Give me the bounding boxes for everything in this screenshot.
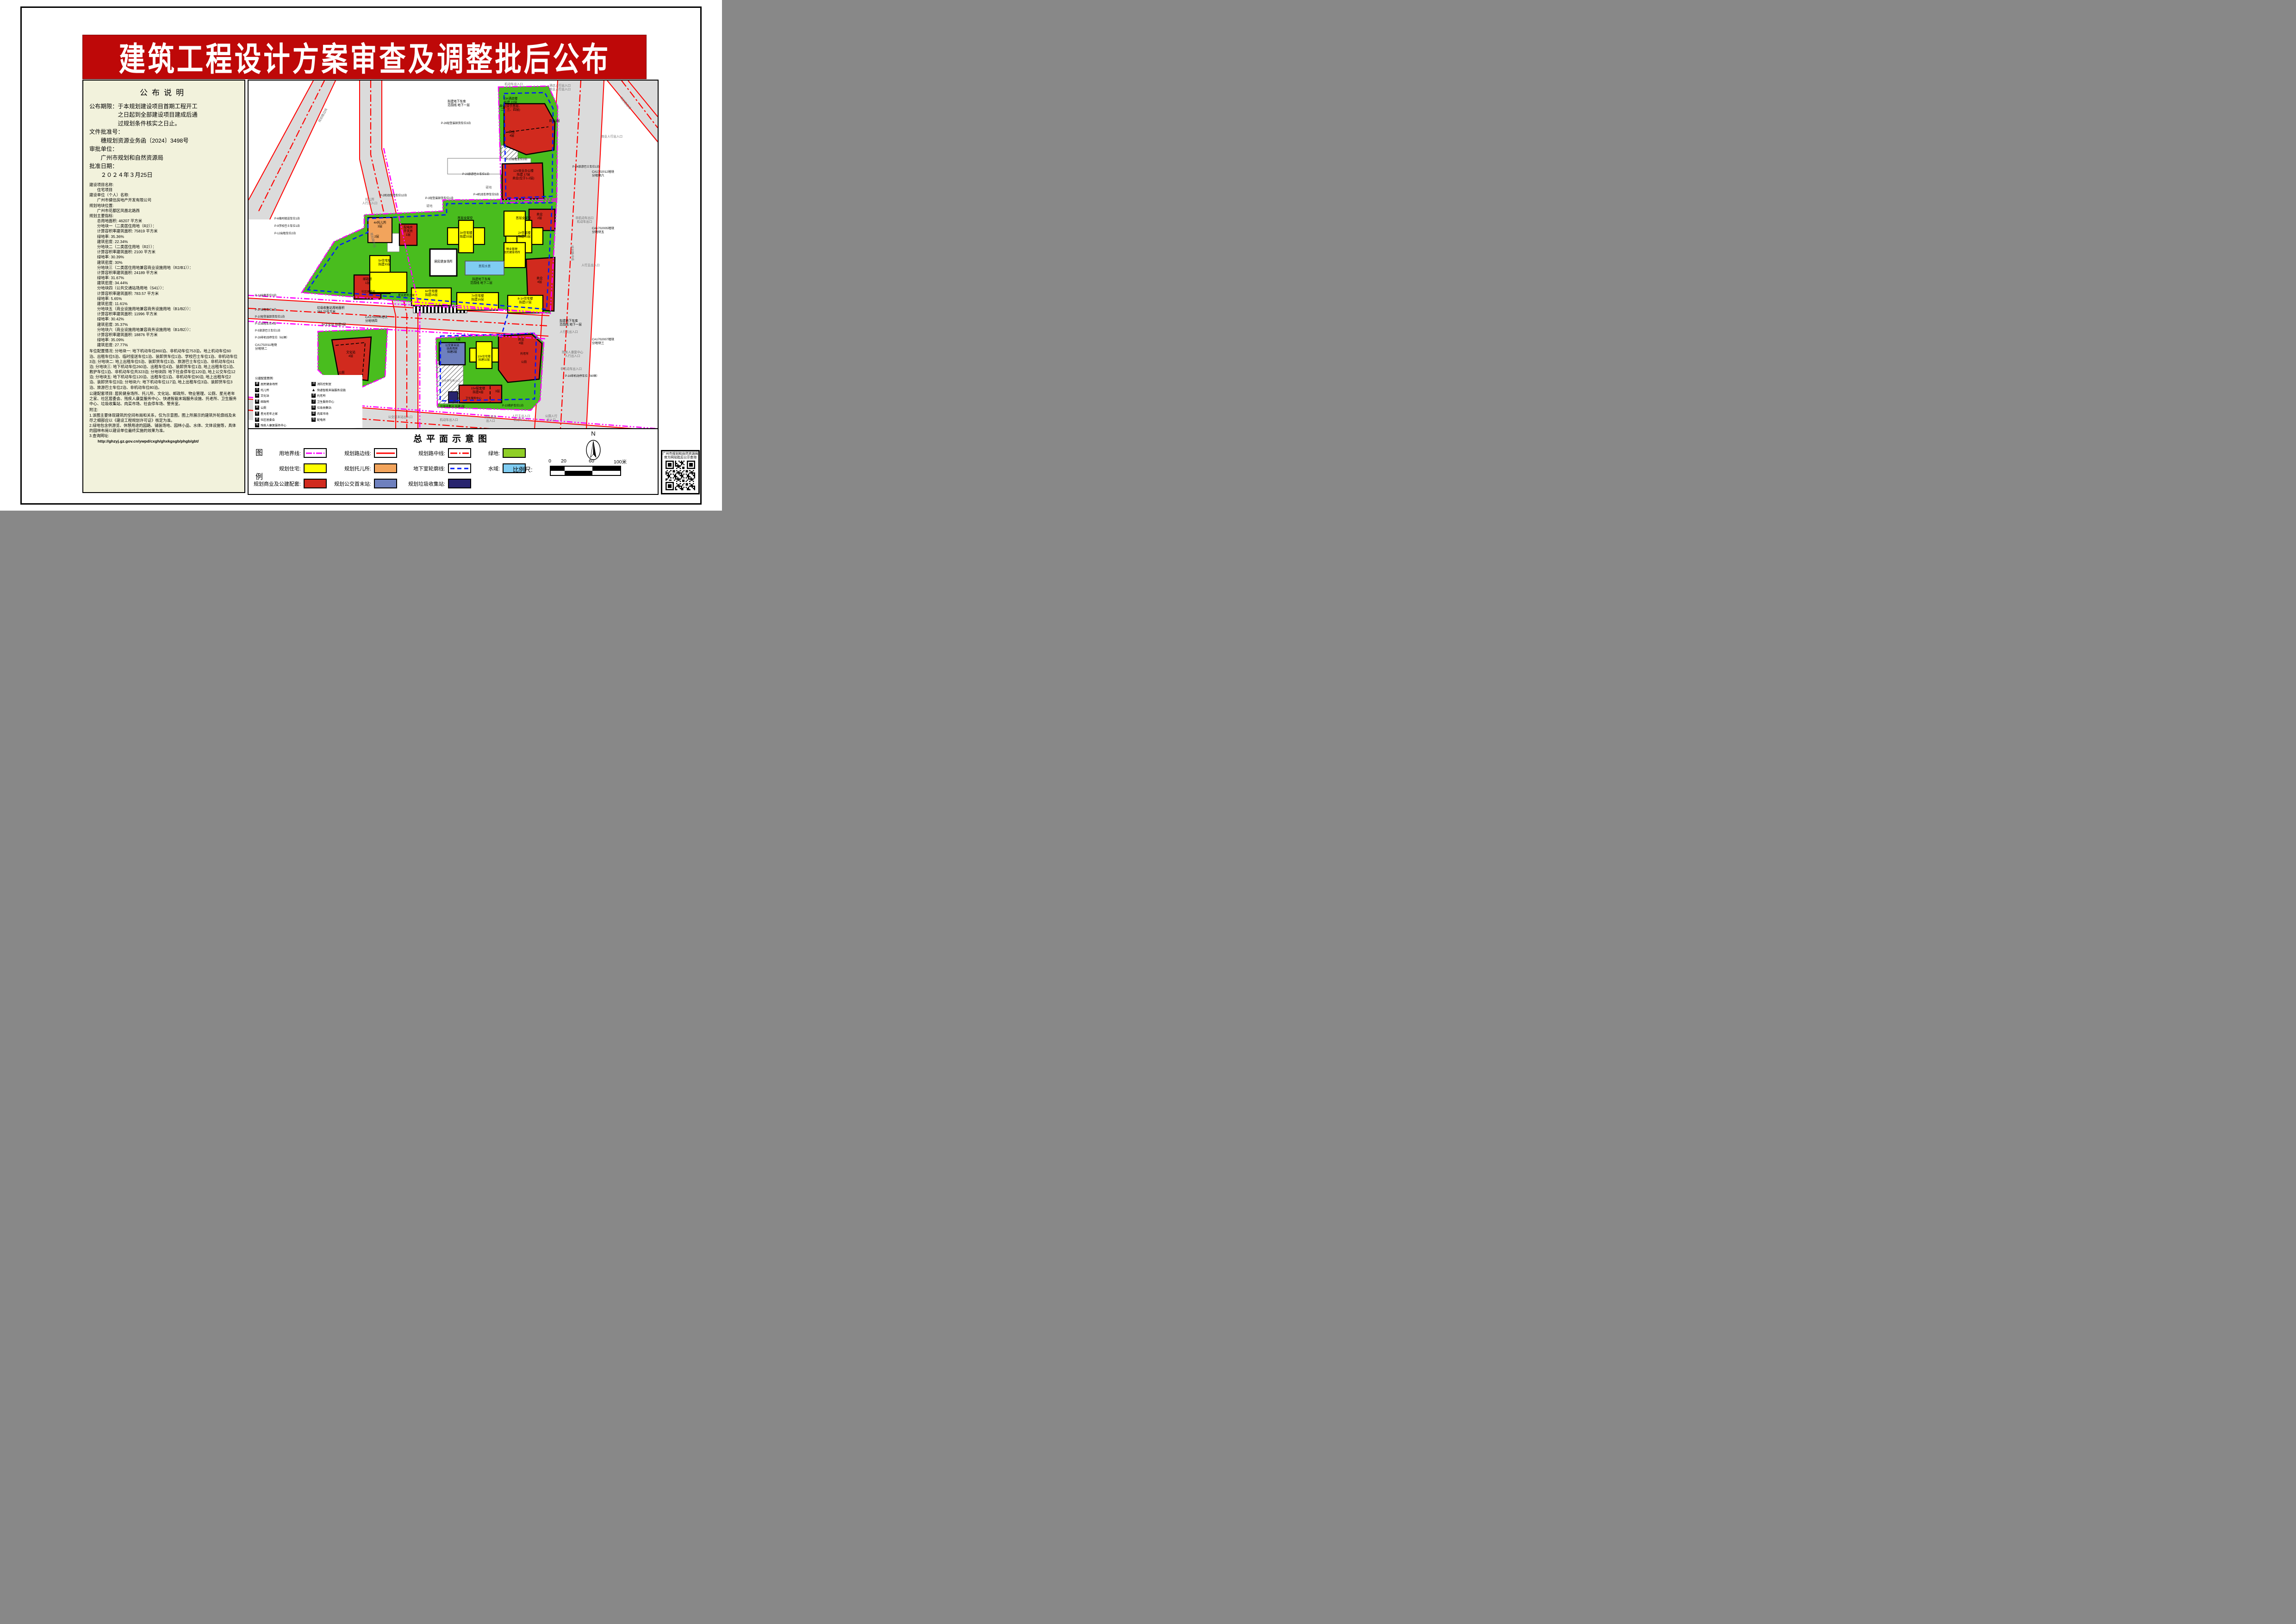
legend-item: 规划路中线: — [401, 448, 475, 458]
map-label-fitness: 居民健身场所 — [430, 260, 457, 264]
map-label-p3: P-3轻型装卸货车位1泊 — [425, 197, 472, 200]
qr-code — [666, 461, 695, 490]
map-entrance-nursery: 托儿所 人行出入口 — [357, 198, 383, 206]
map-label-p12: P-12出租车位2泊 — [274, 232, 319, 236]
facility-label: 托儿所 — [261, 388, 269, 392]
scale-tick-20: 20 — [561, 458, 566, 464]
site-plan-map: 13#酒店楼 拟建 22层 商业(设于首层、 二、三、四层) 12#商业办公楼 … — [248, 80, 659, 430]
facility-legend-item: 星 星光老年之家 — [255, 411, 311, 417]
facility-icon: 邮 — [255, 400, 259, 404]
legend-item-swatch — [304, 463, 327, 473]
map-label-res5: 5#住宅楼 拟建33层 — [371, 259, 398, 267]
query-url: http://ghzyj.gz.gov.cn/ywpd/cxgh/ghxkgsg… — [98, 439, 238, 443]
map-label-p10: P-10轻型装卸货车位1泊 — [255, 316, 303, 319]
facility-icon: 卫 — [311, 400, 316, 404]
map-entrance-biz-ped: 商业人行出入口 — [595, 135, 629, 139]
map-label-nursery: 4#托儿所 3层 — [368, 221, 392, 229]
facility-label: 公厕 — [261, 406, 266, 410]
map-label-hotel13: 13#酒店楼 拟建 22层 商业(设于首层、 二、三、四层) — [489, 97, 532, 112]
legend-item: 规划住宅: — [257, 463, 330, 473]
map-label-pool: 景观水景 — [467, 265, 502, 269]
facility-label: 托老所 — [317, 394, 326, 398]
facility-icon: 星 — [255, 412, 259, 416]
map-label-culture4f: 文化站 4层 — [341, 351, 361, 358]
map-label-biz4f-b: 商业 4层 — [532, 277, 548, 284]
legend-item-label: 规划托儿所: — [344, 465, 371, 472]
map-label-p22: P-22出租车位3泊 — [506, 158, 543, 162]
map-entrance-hotel-ped: 酒店人行出入口 商业人行出入口 — [541, 84, 579, 92]
facility-label: 居民健身场所 — [261, 382, 278, 386]
legend-item-label: 规划住宅: — [279, 465, 301, 472]
map-label-p4: P-4机动车停车位5泊 — [473, 194, 517, 197]
map-label-hard-2: 硬地 — [423, 205, 436, 208]
legend-item-swatch — [304, 479, 327, 488]
facility-label: 星光老年之家 — [261, 412, 278, 416]
facility-legend-item: 菜 肉菜市场 — [311, 411, 361, 417]
parking-config: 车位配置情况: 分地块一: 地下机动车位860泊、非机动车位753泊，地上机动车… — [89, 349, 238, 390]
facility-icon: 文 — [255, 394, 259, 398]
map-label-ca06: CA1702006地块 分地块四 — [365, 316, 405, 323]
facility-legend-item: 老 托老所 — [311, 393, 361, 399]
map-entrance-main-motor: 人行主出入口 机动车入口 — [506, 415, 536, 422]
scale-tick-60: 60 — [589, 458, 594, 464]
qr-caption: 广州市规划和自然资源局 官方网站批后公示查询 — [662, 452, 698, 460]
map-entrance-nonmotor: 非机动车出入口 — [554, 368, 588, 371]
legend-item: 规划公交首末站: — [330, 479, 401, 488]
facility-icon: 菜 — [311, 412, 316, 416]
legend-item-label: 用地界线: — [279, 450, 301, 457]
map-entrance-wc: 公厕人行 出入口 — [540, 415, 562, 422]
map-label-garage-b2: 拟建地下车库 范围线 地下二层 — [460, 278, 502, 285]
legend-item-swatch — [374, 463, 397, 473]
map-label-stilt-a: 首层全架空 — [448, 217, 483, 220]
facility-label: 卫生服务中心 — [317, 400, 334, 404]
facility-legend-item: 文 文化站 — [255, 393, 311, 399]
legend-item-label: 规划商业及公建配套: — [254, 480, 301, 487]
legend-item: 用地界线: — [257, 448, 330, 458]
legend-item-label: 规划公交首末站: — [334, 480, 371, 487]
facility-label: 垃圾收集站 — [317, 406, 331, 410]
map-label-biz3f: 商业3层 — [547, 119, 562, 123]
map-entrance-bus-term: 公交首末站出入口 — [381, 416, 420, 419]
facility-label: 配电房 — [317, 418, 326, 422]
map-entrance-rehab: 残疾人康复中心 人行出入口 — [554, 351, 591, 358]
map-label-garage-b1b: 拟建地下车库 范围线 地下一层 — [560, 319, 602, 327]
legend-item-label: 地下室轮廓线: — [413, 465, 445, 472]
legend-item: 地下室轮廓线: — [401, 463, 475, 473]
facility-legend-item: 厕 公厕 — [255, 405, 311, 411]
facility-legend-item: 残 残疾人康复服务中心 — [255, 423, 311, 429]
facility-label: 残疾人康复服务中心 — [261, 423, 286, 427]
poster-page: 建筑工程设计方案审查及调整批后公布 公布说明 公布期限：于本规划建设项目首期工程… — [0, 0, 722, 511]
map-label-p26: P-26轻型装卸货车位3泊 — [441, 122, 489, 125]
map-entrance-motor-bottom: 机动车出入口 — [434, 418, 464, 422]
map-label-p11: P-11出租车位4泊 — [255, 323, 299, 326]
map-entrance-motor-top: 机动车出入口 — [498, 83, 529, 87]
map-label-p6: P-6临时接送车位1泊 — [274, 218, 319, 221]
map-label-biz4f-a: 商业 4层 — [505, 131, 519, 138]
scale-tick-0: 0 — [548, 458, 551, 464]
map-entrance-nonmotor-out: 非机动车出口 机动车出口 — [568, 217, 601, 224]
map-label-wc-b: 公厕 — [518, 361, 530, 364]
announcement-body: 公布期限：于本规划建设项目首期工程开工 之日起到全部建设项目建成后通 过规划条件… — [89, 102, 238, 179]
facility-legend-item: 健 居民健身场所 — [255, 381, 311, 387]
legend-item-swatch — [374, 448, 397, 458]
map-label-p28: P-28非机动停车位（61辆） — [255, 337, 306, 340]
map-entrance-parking: 社会停车场入口 — [435, 380, 467, 383]
map-entrance-ped-main: 人行主出入口 — [575, 264, 606, 268]
map-label-res2: 2#住宅楼 拟建33层 — [507, 231, 542, 239]
legend-item-label: 规划路边线: — [344, 450, 371, 457]
map-entrance-fire: 消防紧急 出入口 — [479, 416, 502, 423]
map-label-ca11: CA1702011地块 分地块二 — [255, 344, 295, 351]
announcement-panel: 公布说明 公布期限：于本规划建设项目首期工程开工 之日起到全部建设项目建成后通 … — [82, 80, 245, 493]
map-label-p27: P-27出租车位1泊 — [255, 309, 299, 312]
legend-item-label: 规划路中线: — [418, 450, 445, 457]
map-label-ca05: CA1702005地块 分地块五 — [592, 227, 632, 234]
facility-mini-legend-items: 健 居民健身场所 托 托儿所 文 文化站 邮 邮政所 厕 公厕 — [255, 381, 362, 428]
map-label-bus1f: 1层 — [452, 338, 464, 342]
map-label-p5: P-5旅游巴士车位1泊 — [255, 330, 299, 333]
legend-item-label: 规划垃圾收集站: — [408, 480, 445, 487]
facility-icon: 电 — [311, 418, 316, 422]
map-roadname-center-2: 规划路中线 — [570, 245, 574, 261]
map-label-stilt-b: 首层全架空 — [506, 217, 541, 220]
facility-icon: 老 — [311, 394, 316, 398]
facility-legend-item: ▲ 快递智能末端服务设施 — [311, 387, 361, 393]
map-label-res3: 3#住宅楼 拟建33层 — [448, 231, 484, 239]
facility-icon: 健 — [255, 382, 259, 386]
legend-item: 规划商业及公建配套: — [257, 479, 330, 488]
map-label-pm: 物业管理 居民健身场所 — [497, 248, 527, 255]
legend-item: 规划垃圾收集站: — [401, 479, 475, 488]
map-label-ca07: CA1702007地块 分地块三 — [592, 338, 632, 345]
facility-label: 社区居委会 — [261, 418, 275, 422]
scale-bar-area: 比例尺: 0 20 60 100米 — [513, 458, 652, 491]
map-label-bus: 公交首末站 站务用房 拟建2层 — [438, 344, 466, 355]
facility-legend-item: 邮 邮政所 — [255, 399, 311, 405]
legend-item-label: 水域: — [488, 465, 500, 472]
facility-legend-item: 圾 垃圾收集站 — [311, 405, 361, 411]
map-label-f3: 3层 — [492, 390, 503, 394]
map-label-p2: P-2机动车停车位12泊 — [380, 194, 424, 198]
facility-label: 文化站 — [261, 394, 269, 398]
legend-item-swatch — [448, 463, 471, 473]
map-label-p15: P-15救护车位1泊 — [502, 405, 539, 408]
map-label-waste: 垃圾收集站 拟建1层 — [440, 406, 480, 409]
map-label-res10: 10#住宅楼 拟建32层 — [470, 356, 498, 362]
map-label-waste-area: 垃圾收集站用地面积 268.70平方米 — [317, 306, 361, 314]
facility-icon: 托 — [255, 388, 259, 392]
qr-panel: 广州市规划和自然资源局 官方网站批后公示查询 — [661, 450, 700, 494]
facility-legend-item: 托 托儿所 — [255, 387, 311, 393]
map-label-post: 邮政所 1层 — [355, 278, 380, 285]
facility-label: 快递智能末端服务设施 — [317, 388, 346, 392]
legend-item: 规划托儿所: — [330, 463, 401, 473]
map-label-garage-b1a: 拟建地下车库 范围线 地下一层 — [448, 100, 488, 107]
map-label-p24: P-24旅游巴士车位1泊 — [572, 166, 619, 169]
legend-item-swatch — [304, 448, 327, 458]
legend-item: 规划路边线: — [330, 448, 401, 458]
legend-item-swatch — [448, 448, 471, 458]
map-label-b15: 15#配套楼 拟建4层 — [464, 387, 492, 394]
facility-legend-item: 消 消防控制室 — [311, 381, 361, 387]
facility-icon: 居 — [255, 418, 259, 422]
notes: 附注: 1.该图主要体现建筑的空间布局和关系，仅为示意图，图上所展示的建筑外轮廓… — [89, 407, 238, 438]
facility-mini-legend-title: 公建配套图例: — [255, 376, 362, 380]
facility-icon: ▲ — [311, 388, 316, 392]
page-title: 建筑工程设计方案审查及调整批后公布 — [118, 35, 610, 79]
legend-item-label: 绿地: — [488, 450, 500, 457]
facility-icon: 厕 — [255, 406, 259, 410]
legend-item-swatch — [374, 479, 397, 488]
map-label-res7: 7#住宅楼 拟建16层 — [458, 294, 498, 302]
map-label-power: 配电房 开关房 1层 — [399, 226, 417, 237]
map-label-res81: 8-1#住宅楼 拟建17层 — [508, 297, 543, 305]
planning-indicators: 建设项目名称: 住宅项目 建设单位（个人）名称: 广州市健信房地产开发有限公司 … — [89, 182, 238, 348]
map-label-ca12: CA1702012地块 分地块六 — [592, 170, 632, 178]
map-label-p16: P-16非机动停车位（60辆） — [565, 375, 614, 378]
legend-items: 用地界线: 规划路边线: 规划路中线: 绿地: 规划住宅: 规划托儿所: 地下室… — [257, 445, 537, 491]
facility-mini-legend: 公建配套图例: 健 居民健身场所 托 托儿所 文 文化站 邮 邮政所 — [253, 375, 362, 428]
compass-n-label: N — [591, 430, 595, 437]
map-label-hard-1: 硬地 — [482, 186, 496, 190]
announcement-title: 公布说明 — [89, 86, 238, 98]
facility-legend-item: 卫 卫生服务中心 — [311, 399, 361, 405]
facility-legend-item: 居 社区居委会 — [255, 417, 311, 423]
public-facilities: 公建配套项目: 居民健身场所、托儿所、文化站、邮政所、物业管理、公厕、星光老年之… — [89, 391, 238, 407]
facility-icon: 圾 — [311, 406, 316, 410]
map-label-bizbig: 商业 4层 — [513, 338, 529, 345]
legend-item: 绿地: — [475, 448, 529, 458]
map-label-committee: 社区居委会 — [357, 291, 380, 294]
map-label-p23: P-23旅游巴士车位1泊 — [462, 173, 509, 176]
legend-item-swatch — [503, 448, 526, 458]
facility-label: 邮政所 — [261, 400, 269, 404]
scale-bar — [550, 466, 621, 476]
facility-label: 消防控制室 — [317, 382, 331, 386]
map-label-p13: P-13出租车位3泊 — [255, 294, 299, 298]
map-entrance-ped-sec: 人行次出入口 — [554, 331, 584, 334]
legend-item-swatch — [448, 479, 471, 488]
title-banner: 建筑工程设计方案审查及调整批后公布 — [82, 35, 647, 79]
map-label-elder-care: 托老所 — [516, 353, 533, 356]
map-label-culture9: 9#文化站 拟建5层 — [322, 323, 364, 327]
scale-label: 比例尺: — [513, 465, 533, 474]
scale-tick-100: 100米 — [614, 458, 627, 465]
facility-label: 肉菜市场 — [317, 412, 329, 416]
map-label-wc-a: 公厕 — [336, 371, 348, 375]
map-label-res6: 6#住宅楼 拟建16层 — [412, 290, 450, 297]
map-label-health: 卫生服务中心 — [460, 397, 487, 400]
map-label-p9: P-9学校巴士车位1泊 — [274, 225, 319, 228]
facility-icon: 消 — [311, 382, 316, 386]
facility-icon: 残 — [255, 423, 259, 427]
facility-legend-item: 电 配电房 — [311, 417, 361, 423]
